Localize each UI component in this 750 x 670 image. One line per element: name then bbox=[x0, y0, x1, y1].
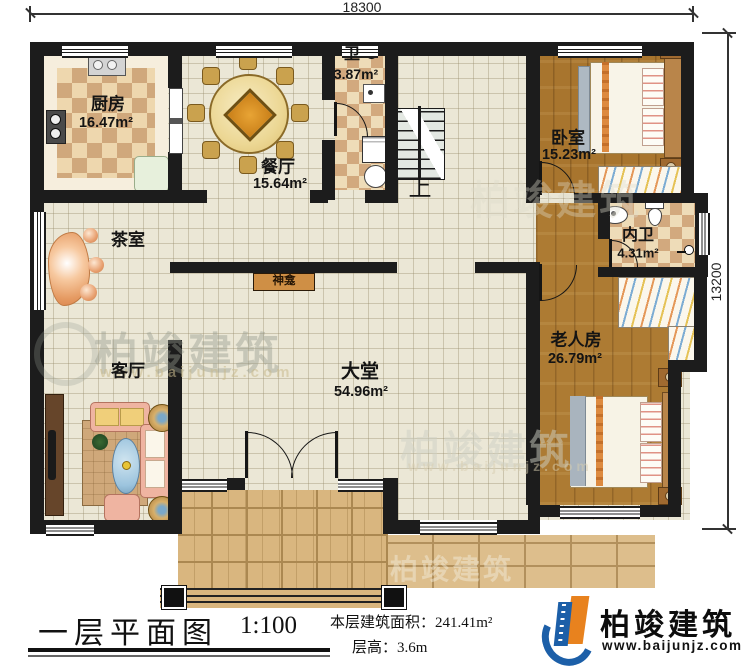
porch-step bbox=[160, 588, 406, 608]
shower-drain bbox=[368, 90, 373, 95]
wall-segment bbox=[168, 340, 182, 534]
wall-segment bbox=[475, 262, 540, 273]
bath-basin bbox=[364, 165, 387, 188]
window bbox=[216, 44, 292, 58]
dimension-top-label: 18300 bbox=[343, 0, 382, 15]
bedroom-wardrobe bbox=[598, 166, 683, 194]
wall-segment bbox=[668, 372, 681, 517]
kitchen-sink-bowl-right bbox=[107, 60, 117, 70]
dimension-ext bbox=[702, 528, 736, 530]
sofa-top-cushion bbox=[95, 408, 119, 426]
elder-pillow bbox=[640, 443, 662, 483]
room-label-bedroom: 卧室 bbox=[551, 130, 585, 147]
title-underline-thin bbox=[28, 655, 330, 657]
floor-area-label: 本层建筑面积： bbox=[330, 615, 435, 631]
room-label-bathroom: 卫 bbox=[344, 47, 360, 63]
door-leaf bbox=[245, 431, 248, 478]
tea-stool bbox=[80, 284, 97, 301]
door-leaf bbox=[539, 264, 542, 301]
plan-title: 一层平面图 bbox=[38, 608, 218, 652]
wall-segment bbox=[227, 478, 245, 490]
room-area-bathroom: 3.87m² bbox=[334, 67, 378, 81]
wall-segment bbox=[168, 56, 182, 88]
elder-closet-top bbox=[618, 277, 696, 328]
floor-area-value: 241.41m² bbox=[435, 615, 492, 631]
door-leaf bbox=[334, 102, 337, 136]
ensuite-basin-drain bbox=[611, 211, 616, 216]
window bbox=[46, 523, 94, 536]
title-underline-thick bbox=[28, 648, 330, 652]
wall-segment bbox=[170, 262, 397, 273]
porch-pier-right bbox=[382, 586, 406, 609]
room-label-dining: 餐厅 bbox=[261, 159, 295, 176]
wall-segment bbox=[668, 360, 707, 372]
door-leaf bbox=[609, 239, 612, 267]
bedroom-bed-stripe bbox=[602, 62, 609, 152]
washing-machine bbox=[362, 136, 387, 163]
tea-stool bbox=[88, 257, 104, 273]
wall-segment bbox=[598, 267, 708, 277]
wall-segment bbox=[526, 273, 540, 505]
ensuite-shower-icon bbox=[684, 245, 694, 255]
wall-segment bbox=[385, 42, 398, 202]
wall-segment bbox=[574, 193, 708, 203]
room-label-hall: 大堂 bbox=[341, 363, 379, 382]
sliding-door bbox=[169, 88, 183, 154]
elder-bed-blanket bbox=[570, 396, 586, 486]
door-leaf bbox=[335, 431, 338, 478]
brand-logo-icon bbox=[542, 594, 598, 658]
stairs-up-label: 上 bbox=[409, 177, 432, 200]
room-label-elder: 老人房 bbox=[551, 332, 602, 349]
dining-chair bbox=[239, 156, 257, 174]
room-area-elder: 26.79m² bbox=[548, 352, 602, 367]
room-area-ensuite: 4.31m² bbox=[617, 247, 658, 260]
wall-segment bbox=[598, 203, 610, 239]
shrine-label: 神龛 bbox=[273, 276, 296, 288]
side-terrace bbox=[388, 535, 655, 588]
porch-pier-left bbox=[162, 586, 186, 609]
window bbox=[182, 479, 227, 492]
shrine-shelf: 神龛 bbox=[253, 273, 315, 291]
bedroom-headboard bbox=[664, 58, 682, 158]
door-leaf bbox=[539, 161, 542, 195]
shower-tray bbox=[363, 84, 385, 103]
wall-segment bbox=[528, 505, 560, 517]
wall-segment bbox=[526, 56, 540, 203]
plan-scale: 1:100 bbox=[240, 612, 297, 640]
bedroom-pillow bbox=[642, 108, 664, 146]
stove-burner-2 bbox=[50, 128, 61, 139]
kitchen-fridge bbox=[134, 156, 169, 192]
dimension-right-label: 13200 bbox=[708, 263, 724, 302]
floor-height-label: 层高： bbox=[352, 640, 397, 656]
wall-segment bbox=[30, 190, 207, 203]
stove-burner-1 bbox=[50, 114, 61, 125]
sofa-right-cushion bbox=[145, 430, 165, 458]
coffee-table-decor bbox=[122, 461, 131, 470]
armchair bbox=[104, 494, 140, 522]
wall-segment bbox=[694, 277, 707, 372]
floor-plan-canvas: 神龛 bbox=[0, 0, 750, 670]
dining-chair bbox=[202, 141, 220, 159]
room-label-ensuite: 内卫 bbox=[622, 228, 654, 244]
window bbox=[697, 213, 710, 255]
entry-porch bbox=[178, 490, 388, 588]
ensuite-shower-arm-icon bbox=[677, 251, 686, 253]
dining-chair bbox=[187, 104, 205, 122]
sofa-right-cushion bbox=[145, 460, 165, 488]
dimension-ext bbox=[702, 32, 736, 34]
window bbox=[420, 522, 497, 535]
floor-area-line: 本层建筑面积：241.41m² bbox=[330, 611, 492, 632]
elder-bed-stripe bbox=[596, 396, 603, 486]
dining-chair bbox=[276, 67, 294, 85]
wall-segment bbox=[310, 190, 328, 203]
elder-pillow bbox=[640, 402, 662, 442]
tv-screen bbox=[48, 430, 56, 480]
kitchen-sink-bowl-left bbox=[93, 60, 103, 70]
room-area-bedroom: 15.23m² bbox=[542, 148, 596, 163]
bedroom-pillow bbox=[642, 68, 664, 106]
room-label-kitchen: 厨房 bbox=[91, 96, 125, 113]
room-label-living: 客厅 bbox=[111, 363, 145, 380]
wall-segment bbox=[398, 520, 420, 534]
room-label-tea: 茶室 bbox=[111, 232, 145, 249]
floor-height-value: 3.6m bbox=[397, 640, 427, 656]
window bbox=[32, 212, 46, 310]
dining-chair bbox=[276, 141, 294, 159]
wall-segment bbox=[383, 478, 398, 534]
window bbox=[560, 506, 640, 519]
floor-height-line: 层高：3.6m bbox=[352, 636, 427, 657]
wall-segment bbox=[365, 190, 398, 203]
tea-stool bbox=[83, 228, 98, 243]
dining-chair bbox=[291, 104, 309, 122]
dining-chair bbox=[202, 67, 220, 85]
wall-segment bbox=[681, 42, 694, 203]
window bbox=[338, 479, 383, 492]
window bbox=[558, 44, 642, 58]
window bbox=[62, 44, 128, 58]
sofa-top-cushion bbox=[120, 408, 144, 426]
dimension-line-right bbox=[727, 33, 729, 530]
room-area-hall: 54.96m² bbox=[334, 385, 388, 400]
stair-railing bbox=[418, 106, 421, 180]
room-area-kitchen: 16.47m² bbox=[79, 116, 133, 131]
plant bbox=[92, 434, 108, 450]
brand-website: www.baijunjz.com bbox=[602, 638, 743, 653]
room-area-dining: 15.64m² bbox=[253, 177, 307, 192]
